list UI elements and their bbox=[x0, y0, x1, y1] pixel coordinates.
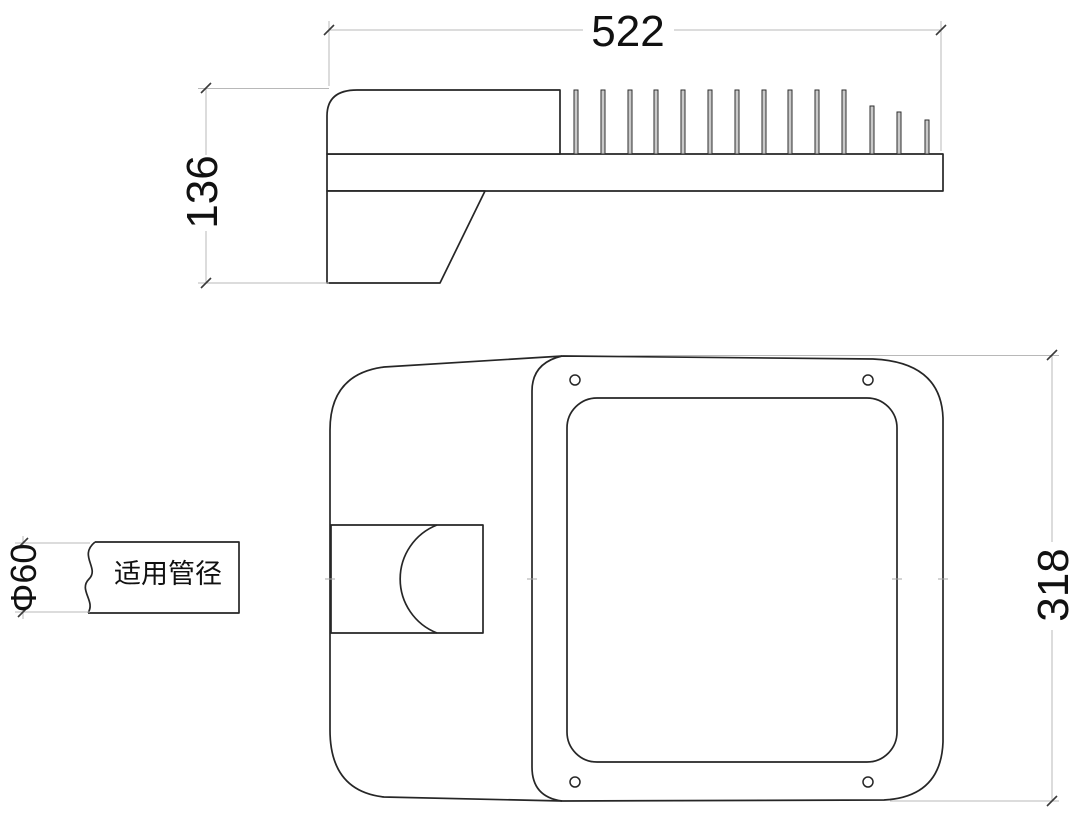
heatsink-fins bbox=[574, 90, 929, 154]
side-view-head-block bbox=[327, 90, 560, 154]
dim-width-label: 522 bbox=[591, 7, 664, 56]
dimension-height-136: 136 bbox=[178, 83, 329, 288]
heatsink-fin bbox=[628, 90, 632, 154]
plan-view-housing-outline bbox=[330, 356, 943, 801]
screw-hole bbox=[863, 375, 873, 385]
side-view bbox=[327, 90, 943, 283]
heatsink-fin bbox=[788, 90, 792, 154]
heatsink-fin bbox=[708, 90, 712, 154]
heatsink-fin bbox=[735, 90, 739, 154]
heatsink-fin-short bbox=[925, 120, 929, 154]
screw-hole bbox=[570, 777, 580, 787]
drawing-canvas: 522 136 bbox=[0, 0, 1089, 814]
heatsink-fin-short bbox=[870, 106, 874, 154]
pipe-callout: 适用管径 Φ60 bbox=[3, 536, 239, 619]
heatsink-fin bbox=[601, 90, 605, 154]
plan-view bbox=[325, 356, 948, 801]
heatsink-fin bbox=[842, 90, 846, 154]
heatsink-fin bbox=[681, 90, 685, 154]
screw-hole bbox=[570, 375, 580, 385]
pipe-note-label: 适用管径 bbox=[114, 559, 222, 589]
dim-height-label: 136 bbox=[178, 155, 227, 228]
heatsink-fin bbox=[815, 90, 819, 154]
side-view-base-plate bbox=[327, 154, 943, 191]
pipe-diameter-label: Φ60 bbox=[3, 544, 44, 613]
pipe-break-line bbox=[85, 542, 95, 613]
street-light-dimension-drawing: 522 136 bbox=[0, 0, 1089, 814]
heatsink-fin bbox=[762, 90, 766, 154]
heatsink-fin bbox=[574, 90, 578, 154]
heatsink-fin bbox=[654, 90, 658, 154]
heatsink-fin-short bbox=[897, 112, 901, 154]
screw-hole bbox=[863, 777, 873, 787]
side-view-mounting-arm bbox=[327, 191, 485, 283]
dim-depth-label: 318 bbox=[1029, 548, 1078, 621]
